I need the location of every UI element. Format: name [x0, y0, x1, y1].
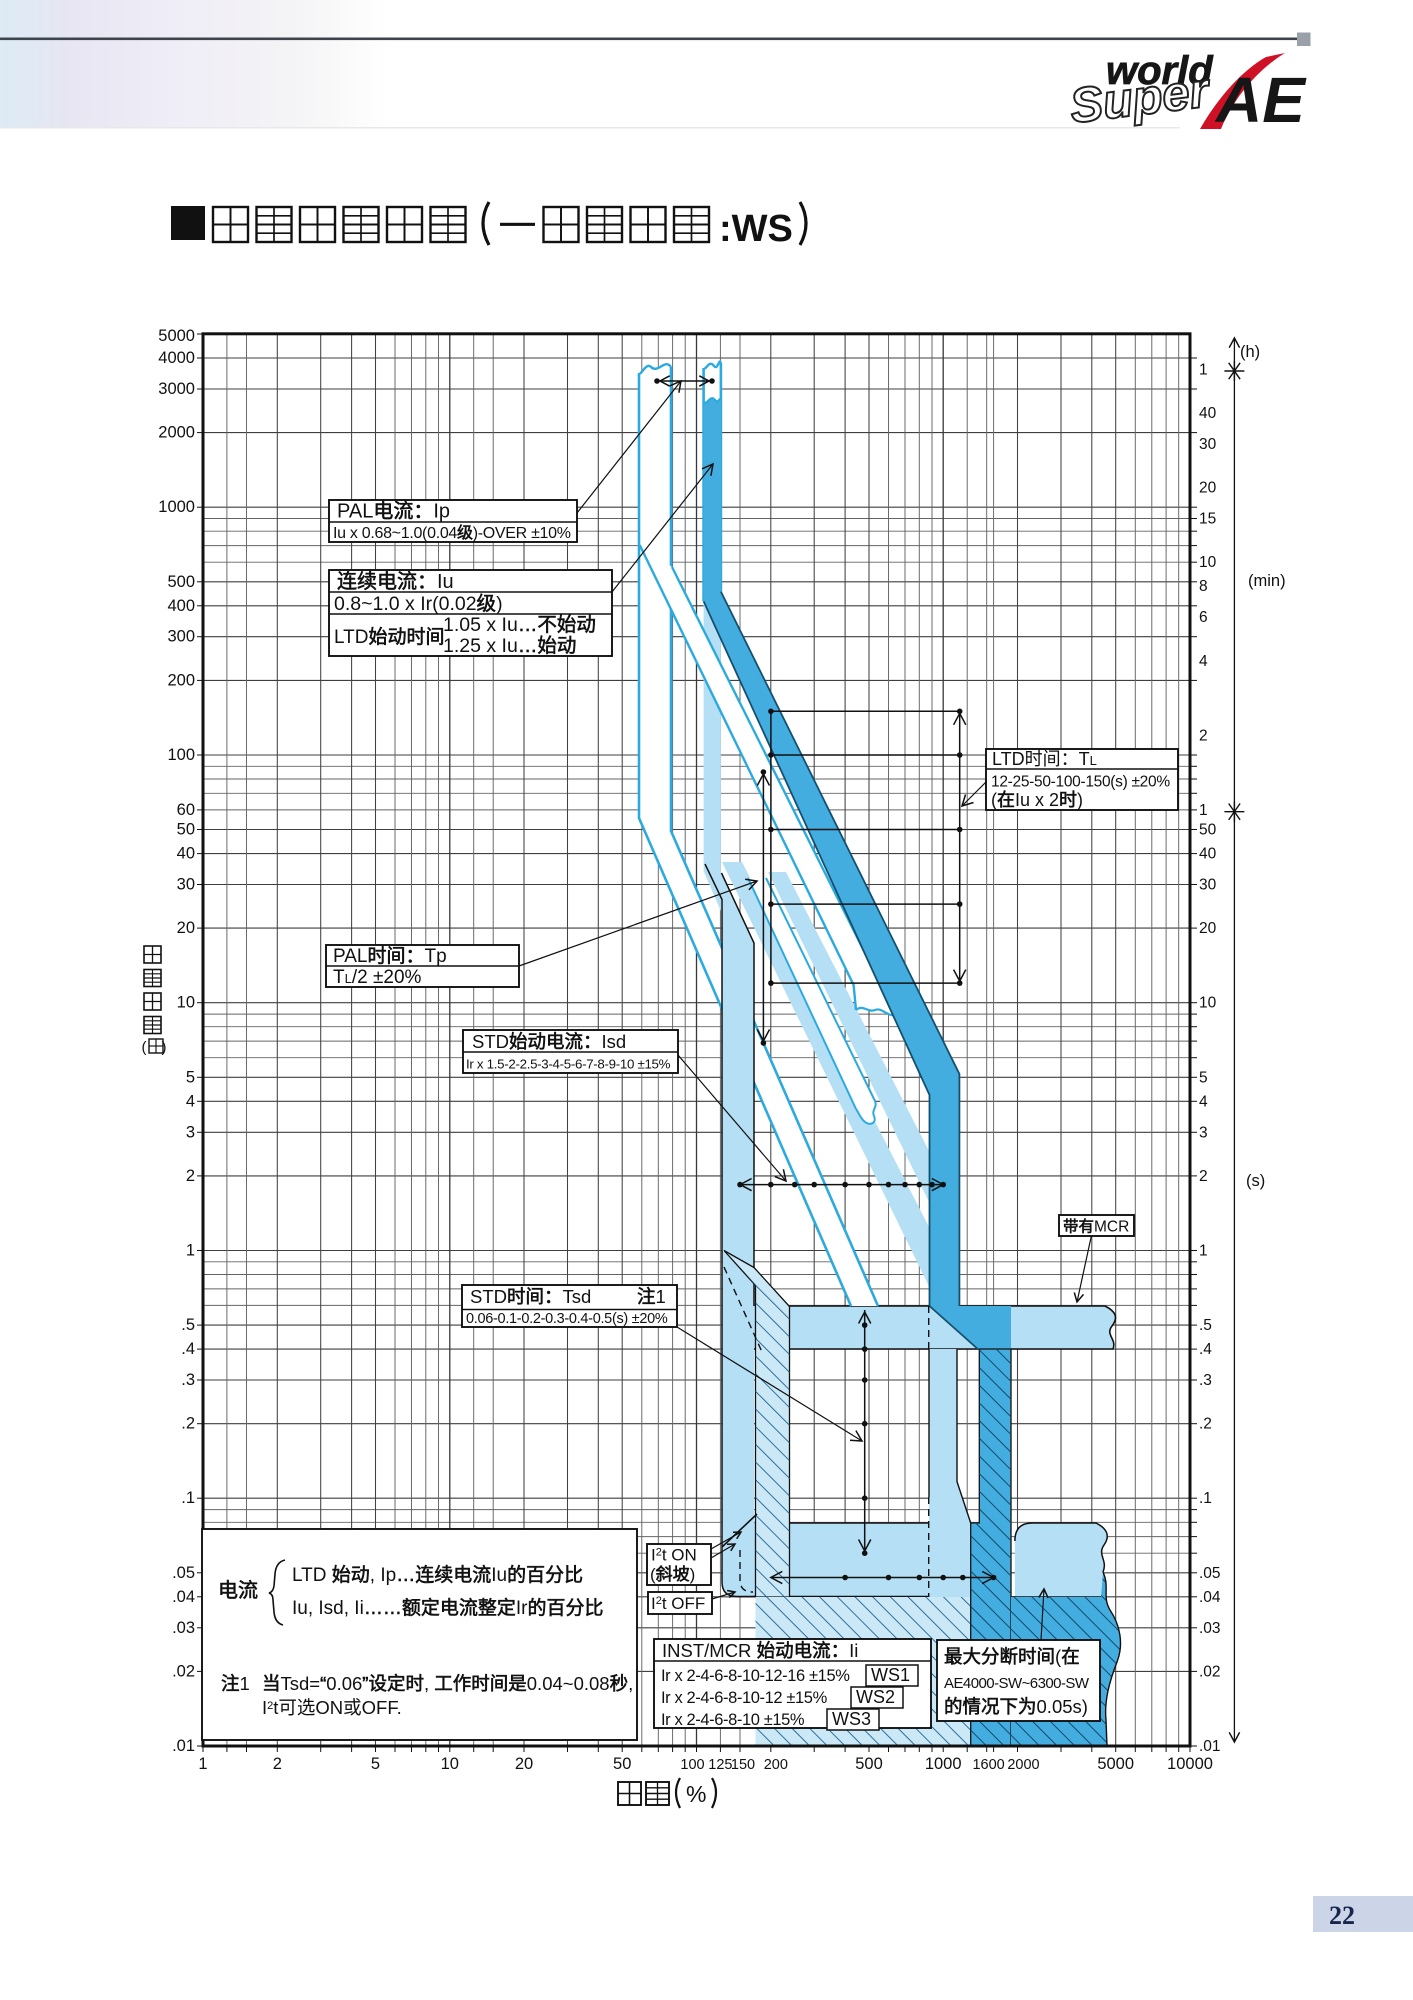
svg-text:30: 30	[177, 876, 195, 894]
svg-text:TL/2 ±20%: TL/2 ±20%	[333, 967, 422, 988]
svg-text:.02: .02	[172, 1662, 195, 1680]
svg-text:LTD始动时间: LTD始动时间	[334, 626, 445, 648]
svg-text:125: 125	[708, 1757, 732, 1773]
svg-text:PAL电流：Ip: PAL电流：Ip	[337, 500, 450, 523]
svg-text:.03: .03	[172, 1619, 195, 1637]
svg-text:10: 10	[1199, 995, 1217, 1012]
svg-text:1.05 x Iu…不始动: 1.05 x Iu…不始动	[443, 614, 596, 636]
svg-text:50: 50	[177, 821, 195, 839]
svg-text:WS1: WS1	[871, 1665, 910, 1685]
svg-text:.3: .3	[181, 1371, 195, 1389]
svg-text:150: 150	[731, 1757, 755, 1773]
svg-text:2: 2	[1199, 1168, 1208, 1185]
svg-text:20: 20	[1199, 920, 1217, 937]
svg-text:注1: 注1	[637, 1286, 666, 1307]
svg-text:1: 1	[198, 1755, 207, 1773]
svg-text:30: 30	[1199, 436, 1217, 453]
svg-text:的情况下为0.05s): 的情况下为0.05s)	[944, 1696, 1088, 1717]
svg-text:300: 300	[167, 628, 195, 646]
svg-text:AE: AE	[1214, 64, 1307, 136]
svg-text:当Tsd=“0.06”设定时, 工作时间是0.04~0.08: 当Tsd=“0.06”设定时, 工作时间是0.04~0.08秒,	[262, 1673, 633, 1694]
svg-text:40: 40	[1199, 846, 1217, 863]
svg-text:1.25 x Iu…始动: 1.25 x Iu…始动	[443, 635, 576, 657]
svg-text:.5: .5	[1199, 1317, 1212, 1334]
svg-text:最大分断时间(在: 最大分断时间(在	[944, 1646, 1080, 1667]
svg-text:10: 10	[441, 1755, 459, 1773]
svg-text:3: 3	[1199, 1124, 1208, 1141]
svg-text:1: 1	[1199, 802, 1208, 819]
svg-text:STD时间：Tsd: STD时间：Tsd	[470, 1286, 591, 1307]
svg-text:100: 100	[680, 1757, 704, 1773]
svg-text:60: 60	[177, 801, 195, 819]
svg-text:电流: 电流	[218, 1579, 258, 1602]
svg-text:2: 2	[1199, 727, 1208, 744]
svg-text:5000: 5000	[1097, 1755, 1134, 1773]
svg-text:Ir x 1.5-2-2.5-3-4-5-6-7-8-9-1: Ir x 1.5-2-2.5-3-4-5-6-7-8-9-10 ±15%	[466, 1057, 671, 1072]
svg-text:AE4000-SW~6300-SW: AE4000-SW~6300-SW	[944, 1675, 1090, 1692]
svg-text:20: 20	[515, 1755, 533, 1773]
svg-text:1: 1	[1199, 1243, 1208, 1260]
svg-text:.05: .05	[1199, 1565, 1221, 1582]
svg-text:Super: Super	[1067, 63, 1214, 134]
svg-text:3: 3	[186, 1123, 195, 1141]
svg-text:3000: 3000	[158, 380, 195, 398]
svg-text:.04: .04	[1199, 1589, 1221, 1606]
svg-text:.01: .01	[172, 1737, 195, 1755]
svg-text:.04: .04	[172, 1588, 195, 1606]
svg-text:0.8~1.0 x Ir(0.02级): 0.8~1.0 x Ir(0.02级)	[334, 593, 503, 615]
svg-text:注1: 注1	[221, 1673, 250, 1694]
svg-text:(s): (s)	[1246, 1172, 1265, 1190]
svg-text:.05: .05	[172, 1564, 195, 1582]
svg-text:50: 50	[1199, 822, 1217, 839]
svg-text:(在Iu x 2时): (在Iu x 2时)	[991, 790, 1083, 810]
svg-text:.4: .4	[181, 1340, 195, 1358]
svg-text:.2: .2	[1199, 1416, 1212, 1433]
svg-text:.1: .1	[181, 1489, 195, 1507]
svg-text:连续电流：Iu: 连续电流：Iu	[337, 570, 454, 593]
svg-text:5: 5	[186, 1068, 195, 1086]
svg-text:4: 4	[1199, 653, 1208, 670]
svg-text:Iu, Isd, Ii……额定电流整定Ir的百分比: Iu, Isd, Ii……额定电流整定Ir的百分比	[292, 1597, 603, 1619]
svg-text:10: 10	[177, 994, 195, 1012]
svg-text:.5: .5	[181, 1316, 195, 1334]
svg-text:50: 50	[613, 1755, 631, 1773]
svg-text:500: 500	[855, 1755, 883, 1773]
svg-text:WS2: WS2	[856, 1687, 895, 1707]
svg-text::WS: :WS	[719, 208, 793, 250]
svg-text:2000: 2000	[1007, 1757, 1039, 1773]
svg-text:.02: .02	[1199, 1663, 1221, 1680]
svg-text:(h): (h)	[1240, 343, 1260, 361]
svg-text:I2t可选ON或OFF.: I2t可选ON或OFF.	[262, 1697, 402, 1718]
svg-text:INST/MCR 始动电流：Ii: INST/MCR 始动电流：Ii	[662, 1640, 858, 1661]
svg-text:Ir x 2-4-6-8-10-12-16 ±15%: Ir x 2-4-6-8-10-12-16 ±15%	[661, 1667, 850, 1685]
svg-text:30: 30	[1199, 877, 1217, 894]
svg-text:WS3: WS3	[832, 1709, 871, 1729]
svg-text:10: 10	[1199, 554, 1217, 571]
svg-text:带有MCR: 带有MCR	[1063, 1218, 1129, 1236]
svg-text:.2: .2	[181, 1415, 195, 1433]
svg-text:2: 2	[186, 1167, 195, 1185]
svg-text:400: 400	[167, 597, 195, 615]
svg-text:1: 1	[1199, 361, 1208, 378]
svg-text:LTD时间：TL: LTD时间：TL	[992, 749, 1097, 769]
svg-text:6: 6	[1199, 609, 1208, 626]
svg-text:.1: .1	[1199, 1490, 1212, 1507]
svg-text:2000: 2000	[158, 424, 195, 442]
svg-text:5000: 5000	[158, 327, 195, 345]
svg-text:(斜坡): (斜坡)	[650, 1565, 695, 1584]
svg-text:STD始动电流：Isd: STD始动电流：Isd	[472, 1031, 626, 1052]
svg-text:5: 5	[1199, 1069, 1208, 1086]
svg-text:8: 8	[1199, 578, 1208, 595]
svg-text:): )	[162, 1039, 167, 1056]
svg-text:Ir x 2-4-6-8-10 ±15%: Ir x 2-4-6-8-10 ±15%	[661, 1711, 805, 1729]
svg-text:15: 15	[1199, 511, 1216, 528]
svg-text:20: 20	[1199, 480, 1217, 497]
svg-text:(: (	[142, 1039, 147, 1056]
svg-text:PAL时间：Tp: PAL时间：Tp	[333, 945, 447, 967]
svg-text:500: 500	[167, 573, 195, 591]
svg-text:4: 4	[1199, 1093, 1208, 1110]
svg-text:20: 20	[177, 919, 195, 937]
svg-text:40: 40	[177, 845, 195, 863]
svg-text:%: %	[686, 1781, 706, 1807]
svg-text:4000: 4000	[158, 349, 195, 367]
svg-text:12-25-50-100-150(s) ±20%: 12-25-50-100-150(s) ±20%	[991, 774, 1170, 791]
svg-text:1: 1	[186, 1242, 195, 1260]
svg-text:0.06-0.1-0.2-0.3-0.4-0.5(s) ±2: 0.06-0.1-0.2-0.3-0.4-0.5(s) ±20%	[466, 1311, 668, 1327]
svg-text:10000: 10000	[1167, 1755, 1213, 1773]
svg-text:.4: .4	[1199, 1341, 1212, 1358]
svg-text:.03: .03	[1199, 1620, 1221, 1637]
svg-text:200: 200	[764, 1757, 788, 1773]
svg-text:1000: 1000	[158, 498, 195, 516]
svg-text:200: 200	[167, 671, 195, 689]
svg-text:(min): (min)	[1248, 572, 1286, 590]
svg-text:Ir x 2-4-6-8-10-12 ±15%: Ir x 2-4-6-8-10-12 ±15%	[661, 1689, 828, 1707]
svg-text:LTD 始动, Ip…连续电流Iu的百分比: LTD 始动, Ip…连续电流Iu的百分比	[292, 1564, 583, 1586]
svg-text:1600: 1600	[972, 1757, 1004, 1773]
svg-text:4: 4	[186, 1092, 195, 1110]
svg-text:.3: .3	[1199, 1372, 1212, 1389]
svg-text:1000: 1000	[925, 1755, 962, 1773]
svg-text:Iu x 0.68~1.0(0.04级)-OVER ±10%: Iu x 0.68~1.0(0.04级)-OVER ±10%	[333, 524, 571, 542]
svg-text:22: 22	[1329, 1901, 1355, 1930]
svg-text:100: 100	[167, 746, 195, 764]
svg-text:.01: .01	[1199, 1738, 1221, 1755]
svg-text:5: 5	[371, 1755, 380, 1773]
svg-text:2: 2	[273, 1755, 282, 1773]
svg-text:40: 40	[1199, 405, 1217, 422]
